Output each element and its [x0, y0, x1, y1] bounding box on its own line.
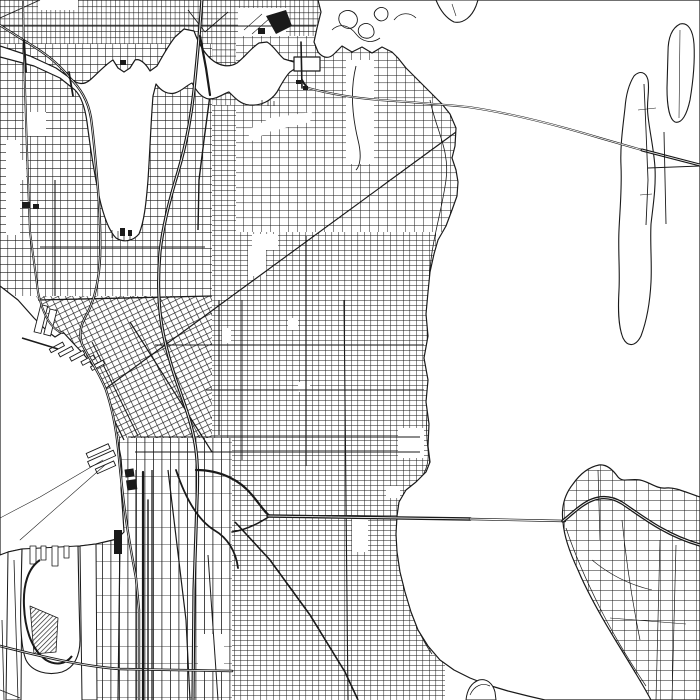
gas-works-block: [120, 60, 126, 65]
montlake-bridge: [301, 42, 302, 88]
map-canvas: Minimalist black-and-white line-art stre…: [0, 0, 700, 700]
seattle-street-map: Minimalist black-and-white line-art stre…: [0, 0, 700, 700]
montlake-cut: [294, 57, 320, 71]
volunteer-park-gap: [248, 250, 266, 276]
interbay-gap: [6, 140, 20, 235]
jefferson-park-gap: [198, 634, 224, 670]
terminal-46-block: [114, 530, 122, 554]
seattle-center-blocks: [33, 204, 39, 209]
east-waterway: [80, 544, 97, 700]
